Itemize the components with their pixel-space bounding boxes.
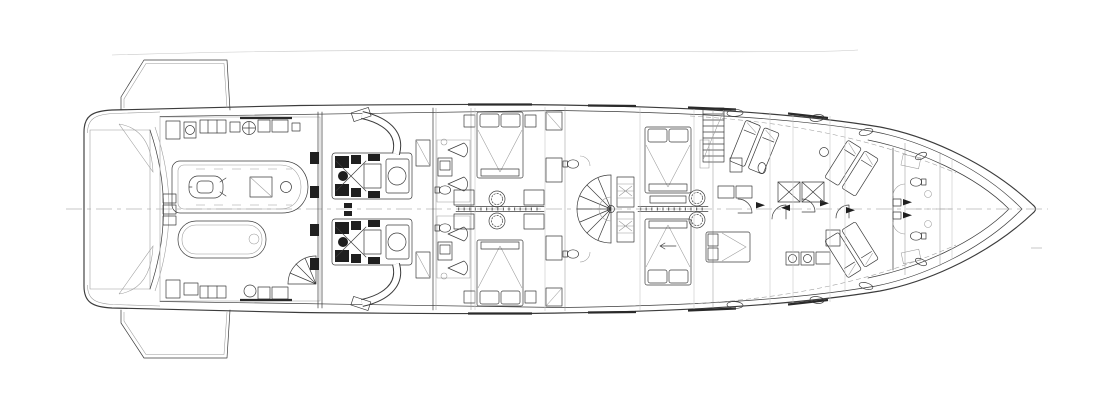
double-bed bbox=[477, 112, 523, 178]
vip-cabin-bottom bbox=[645, 212, 705, 285]
teak-planking bbox=[90, 130, 150, 289]
exhaust-top bbox=[351, 107, 397, 154]
double-bed bbox=[477, 240, 523, 306]
bow-crew-bunks-top bbox=[825, 140, 879, 196]
double-bed bbox=[645, 219, 691, 285]
captain-bed bbox=[706, 232, 750, 262]
lazarette-equipment-bottom bbox=[166, 280, 288, 299]
round-stool bbox=[489, 213, 505, 229]
transom-curve bbox=[150, 130, 164, 289]
double-bed bbox=[645, 127, 691, 193]
tender-1 bbox=[172, 161, 308, 213]
crew-bunks bbox=[730, 120, 780, 174]
main-engine-starboard bbox=[332, 219, 412, 265]
jet-ski bbox=[189, 176, 226, 198]
fold-down-terrace-bottom bbox=[121, 310, 230, 358]
mess-table bbox=[778, 182, 800, 202]
vip-wardrobes bbox=[617, 177, 634, 242]
main-engine-port bbox=[332, 153, 412, 199]
deck-plan-svg bbox=[0, 0, 1118, 420]
lazarette-equipment-top bbox=[166, 120, 300, 139]
transom-stair-arc-bottom bbox=[119, 246, 153, 294]
vip-cabin-top bbox=[645, 127, 709, 206]
stern-contour-bottom bbox=[88, 285, 161, 306]
guest-lobby bbox=[454, 190, 544, 229]
round-stool bbox=[489, 191, 505, 207]
exhaust-bottom bbox=[351, 264, 397, 311]
crew-area bbox=[703, 108, 855, 308]
laundry-machines bbox=[786, 252, 830, 265]
mess-table bbox=[802, 182, 824, 202]
fold-down-terrace-top bbox=[121, 60, 230, 110]
tender-garage bbox=[160, 112, 322, 308]
transom-stair-arc-top bbox=[119, 124, 153, 172]
tender-2 bbox=[178, 221, 266, 258]
main-spiral-staircase bbox=[577, 175, 615, 243]
upper-deck-faint-line bbox=[112, 50, 858, 55]
yacht-deck-plan bbox=[0, 0, 1118, 420]
